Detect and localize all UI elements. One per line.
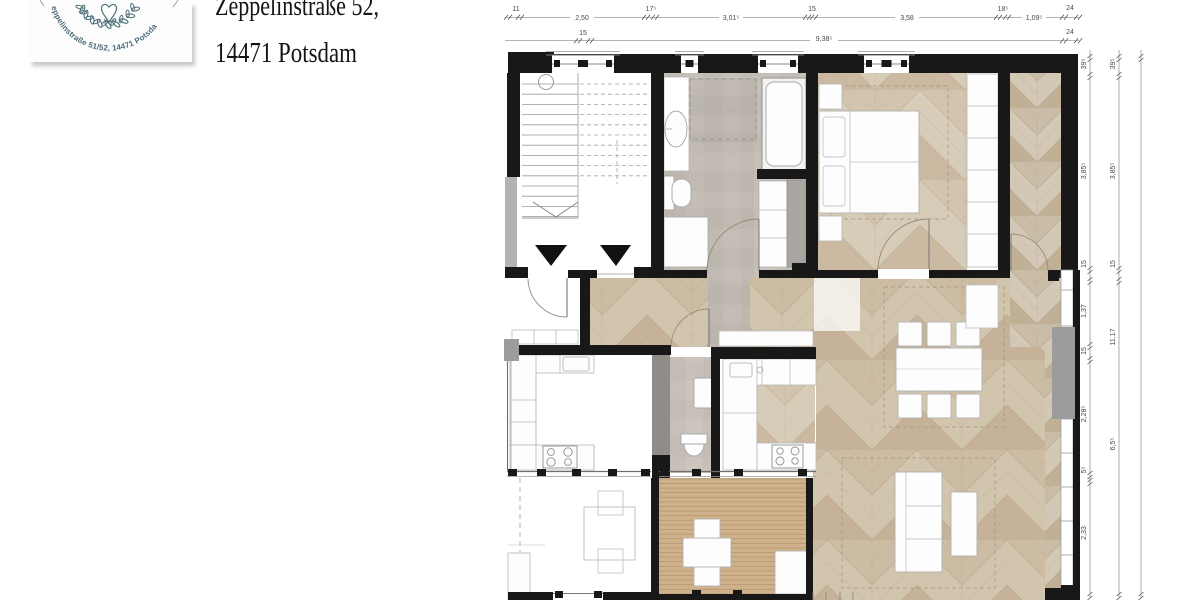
svg-text:1,09⁵: 1,09⁵ (1026, 15, 1043, 22)
svg-text:17⁵: 17⁵ (646, 6, 657, 13)
svg-text:15: 15 (808, 6, 816, 13)
svg-text:15: 15 (1081, 260, 1088, 268)
svg-text:3,85⁵: 3,85⁵ (1110, 163, 1117, 180)
svg-text:3,01⁵: 3,01⁵ (723, 15, 740, 22)
svg-text:39⁵: 39⁵ (1081, 59, 1088, 70)
svg-text:2,50: 2,50 (575, 15, 589, 22)
svg-text:6,5⁵: 6,5⁵ (1110, 438, 1117, 451)
svg-text:11: 11 (512, 6, 519, 13)
svg-text:15: 15 (579, 30, 587, 37)
svg-text:24: 24 (1066, 29, 1074, 36)
svg-text:39⁵: 39⁵ (1110, 59, 1117, 70)
svg-text:3,85⁵: 3,85⁵ (1081, 163, 1088, 180)
svg-text:15: 15 (1081, 347, 1088, 355)
svg-text:9,38⁵: 9,38⁵ (816, 36, 833, 43)
svg-text:24: 24 (1066, 5, 1074, 12)
svg-text:15: 15 (1110, 260, 1117, 268)
svg-text:5⁵: 5⁵ (1081, 467, 1088, 474)
svg-text:2,28⁵: 2,28⁵ (1081, 406, 1088, 423)
svg-text:18⁵: 18⁵ (998, 6, 1009, 13)
svg-text:Zeppelinstraße 52,: Zeppelinstraße 52, (215, 0, 379, 22)
svg-text:3,58: 3,58 (900, 15, 914, 22)
svg-text:1,37: 1,37 (1081, 304, 1088, 318)
svg-text:14471 Potsdam: 14471 Potsdam (215, 38, 357, 69)
svg-text:2,33: 2,33 (1081, 526, 1088, 540)
svg-text:11,17: 11,17 (1110, 328, 1117, 345)
